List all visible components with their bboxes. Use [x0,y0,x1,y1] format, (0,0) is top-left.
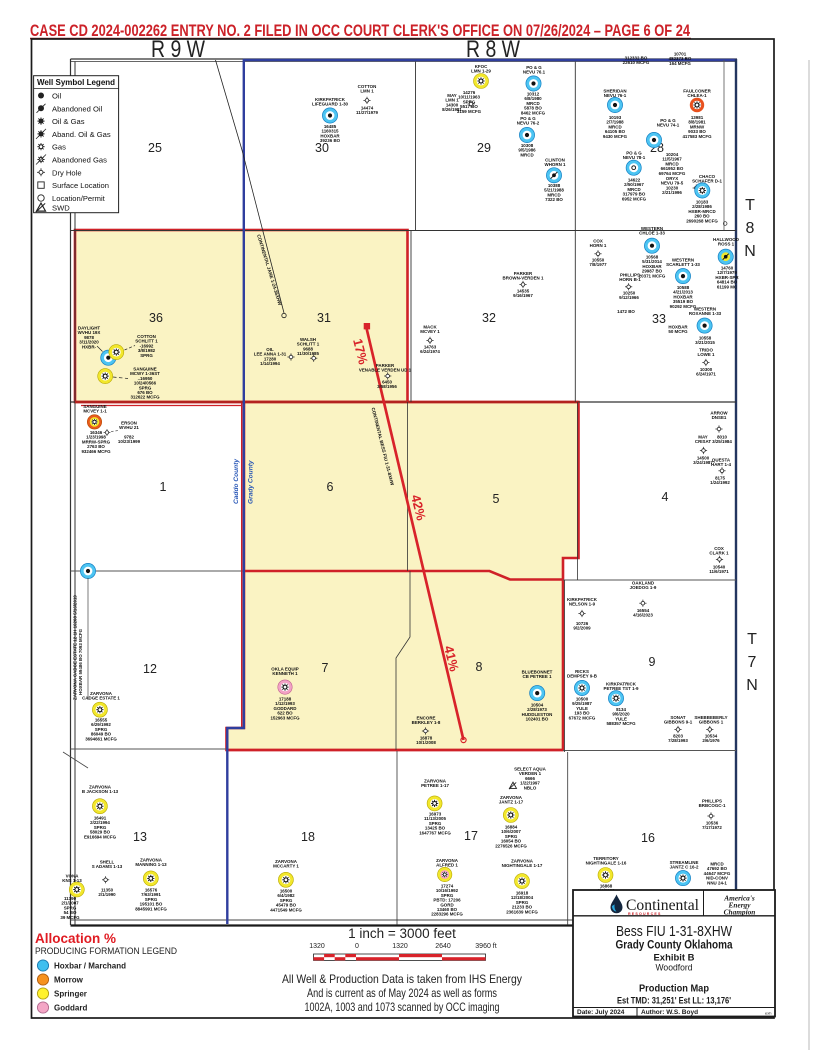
svg-text:25: 25 [148,141,162,155]
svg-text:Date: July 2024: Date: July 2024 [577,1009,625,1016]
svg-text:OAKLANDJOEDOG 1-9: OAKLANDJOEDOG 1-9 [630,581,657,591]
svg-text:Oil & Gas: Oil & Gas [52,117,85,126]
svg-text:SANGUINEMCVEY 1-1: SANGUINEMCVEY 1-1 [83,404,107,414]
svg-text:Author: W.S. Boyd: Author: W.S. Boyd [641,1009,698,1016]
svg-text:36: 36 [149,311,163,325]
svg-text:ERSONWVHU 21: ERSONWVHU 21 [119,421,139,431]
svg-text:SANGUINEMCWY 1-36ST..1695010/2: SANGUINEMCWY 1-36ST..1695010/24/0566SPRG… [130,367,160,400]
svg-text:And is current as of May 2024: And is current as of May 2024 as well as… [307,986,497,1000]
svg-text:31: 31 [317,311,331,325]
svg-text:3960 ft: 3960 ft [475,943,496,950]
svg-text:8: 8 [476,660,483,674]
svg-text:Bess FIU 1-31-8XHW: Bess FIU 1-31-8XHW [616,924,732,940]
svg-text:Morrow: Morrow [54,976,84,985]
svg-text:SWD: SWD [52,204,70,213]
svg-text:Gas: Gas [52,143,66,152]
svg-text:HOXBAR50 MCFG: HOXBAR50 MCFG [668,325,688,335]
svg-text:CASE CD 2024-002262 ENTRY NO.: CASE CD 2024-002262 ENTRY NO. 2 FILED IN… [30,21,690,40]
svg-text:2640: 2640 [435,943,451,950]
svg-text:Oil: Oil [52,92,62,101]
svg-text:ZARVONAJANTZ 1-17: ZARVONAJANTZ 1-17 [499,795,524,805]
svg-text:KIRKPATRICKLIFEGUARD 1-30: KIRKPATRICKLIFEGUARD 1-30 [312,97,349,107]
svg-text:8: 8 [746,220,755,237]
svg-text:OKLA EQUIPKENNETH 1: OKLA EQUIPKENNETH 1 [271,667,298,677]
svg-text:Goddard: Goddard [54,1004,87,1013]
svg-text:Champion: Champion [724,908,756,917]
svg-text:T: T [747,631,757,648]
svg-text:32: 32 [482,311,496,325]
svg-text:Abandoned Gas: Abandoned Gas [52,156,107,165]
svg-text:16: 16 [641,831,655,845]
svg-text:5: 5 [493,492,500,506]
svg-text:ARROWDNSE1: ARROWDNSE1 [710,411,728,421]
svg-text:T: T [745,197,755,214]
svg-text:Dry Hole: Dry Hole [52,168,82,177]
svg-text:PRODUCING FORMATION LEGEND: PRODUCING FORMATION LEGEND [35,946,177,956]
svg-text:1002A, 1003 and 1073 scanned b: 1002A, 1003 and 1073 scanned by OCC imag… [305,1000,500,1014]
svg-text:1 inch = 3000 feet: 1 inch = 3000 feet [348,926,456,941]
svg-text:QUESTAHART 1-4: QUESTAHART 1-4 [711,458,732,468]
svg-text:9: 9 [649,655,656,669]
svg-text:exh: exh [765,1011,771,1016]
svg-text:Allocation %: Allocation % [35,931,116,946]
svg-text:ZARVONAMCCARTY 1: ZARVONAMCCARTY 1 [273,859,299,869]
svg-text:1320: 1320 [392,943,408,950]
svg-text:All Well & Production Data is: All Well & Production Data is taken from… [282,972,522,986]
svg-text:7: 7 [322,661,329,675]
svg-text:7: 7 [748,654,757,671]
svg-text:13: 13 [133,830,147,844]
svg-text:0: 0 [355,943,359,950]
svg-text:4: 4 [662,490,669,504]
svg-text:Production Map: Production Map [639,983,709,995]
svg-text:TRIDOLOWE 1: TRIDOLOWE 1 [697,348,715,358]
svg-text:Caddo County: Caddo County [233,459,240,504]
svg-text:Location/Permit: Location/Permit [52,194,106,203]
svg-text:RESOURCES: RESOURCES [628,912,662,916]
svg-text:Well Symbol Legend: Well Symbol Legend [37,78,115,87]
svg-text:Grady County: Grady County [248,460,255,504]
svg-text:Est TMD: 31,251' Est LL: 13,17: Est TMD: 31,251' Est LL: 13,176' [617,996,731,1007]
svg-text:12: 12 [143,662,157,676]
svg-text:COTTONLMN 1: COTTONLMN 1 [358,84,377,94]
svg-text:KIRKPATRICKNELSON 1-9: KIRKPATRICKNELSON 1-9 [567,597,598,607]
svg-text:N: N [744,243,756,260]
svg-text:SHEBBEBERLYGIBBONS 1: SHEBBEBERLYGIBBONS 1 [694,715,727,725]
svg-text:29: 29 [477,141,491,155]
svg-text:Hoxbar / Marchand: Hoxbar / Marchand [54,962,126,971]
svg-text:6: 6 [327,480,334,494]
svg-text:Abandoned Oil: Abandoned Oil [52,104,103,113]
svg-text:1472 BO: 1472 BO [617,309,635,314]
svg-text:SHERIDANNEVU 76-1: SHERIDANNEVU 76-1 [603,89,626,99]
svg-text:WESTERNCHLOE 1-33: WESTERNCHLOE 1-33 [639,226,665,236]
svg-text:17: 17 [464,829,478,843]
svg-text:1320: 1320 [309,943,325,950]
svg-text:Grady County Oklahoma: Grady County Oklahoma [616,940,734,952]
svg-text:18: 18 [301,830,315,844]
svg-text:HOXBAR 59486 BO 7093 MCFG: HOXBAR 59486 BO 7093 MCFG [78,628,83,695]
svg-text:Springer: Springer [54,990,87,999]
svg-text:1: 1 [160,480,167,494]
svg-text:312332 BO22610 MCFG: 312332 BO22610 MCFG [623,56,650,66]
svg-text:ZARVONAPETREE 1-17: ZARVONAPETREE 1-17 [421,779,449,789]
svg-text:ZARVONA CADGE ESTATE 12-1H 162: ZARVONA CADGE ESTATE 12-1H 16208 5/16/20… [73,595,78,700]
svg-text:CLINTONWHORN 1: CLINTONWHORN 1 [545,158,566,168]
svg-text:KIRKPATRICKPETREE TST 1-9: KIRKPATRICKPETREE TST 1-9 [603,682,639,692]
svg-text:Surface Location: Surface Location [52,181,109,190]
svg-text:BLUEBONNETCB PETREE 1: BLUEBONNETCB PETREE 1 [522,670,553,680]
svg-text:Aband. Oil & Gas: Aband. Oil & Gas [52,130,111,139]
svg-text:Woodford: Woodford [656,963,693,973]
svg-text:N: N [746,677,758,694]
svg-text:PHILLIPSBRBCOGC-1: PHILLIPSBRBCOGC-1 [699,799,726,809]
svg-text:STREAMLINEJANTZ C 16-2: STREAMLINEJANTZ C 16-2 [670,860,699,870]
svg-text:ZARVONAALFRED 1: ZARVONAALFRED 1 [436,858,459,868]
svg-text:33: 33 [652,312,666,326]
svg-text:PHILLIPSHORN B-1: PHILLIPSHORN B-1 [619,273,641,283]
